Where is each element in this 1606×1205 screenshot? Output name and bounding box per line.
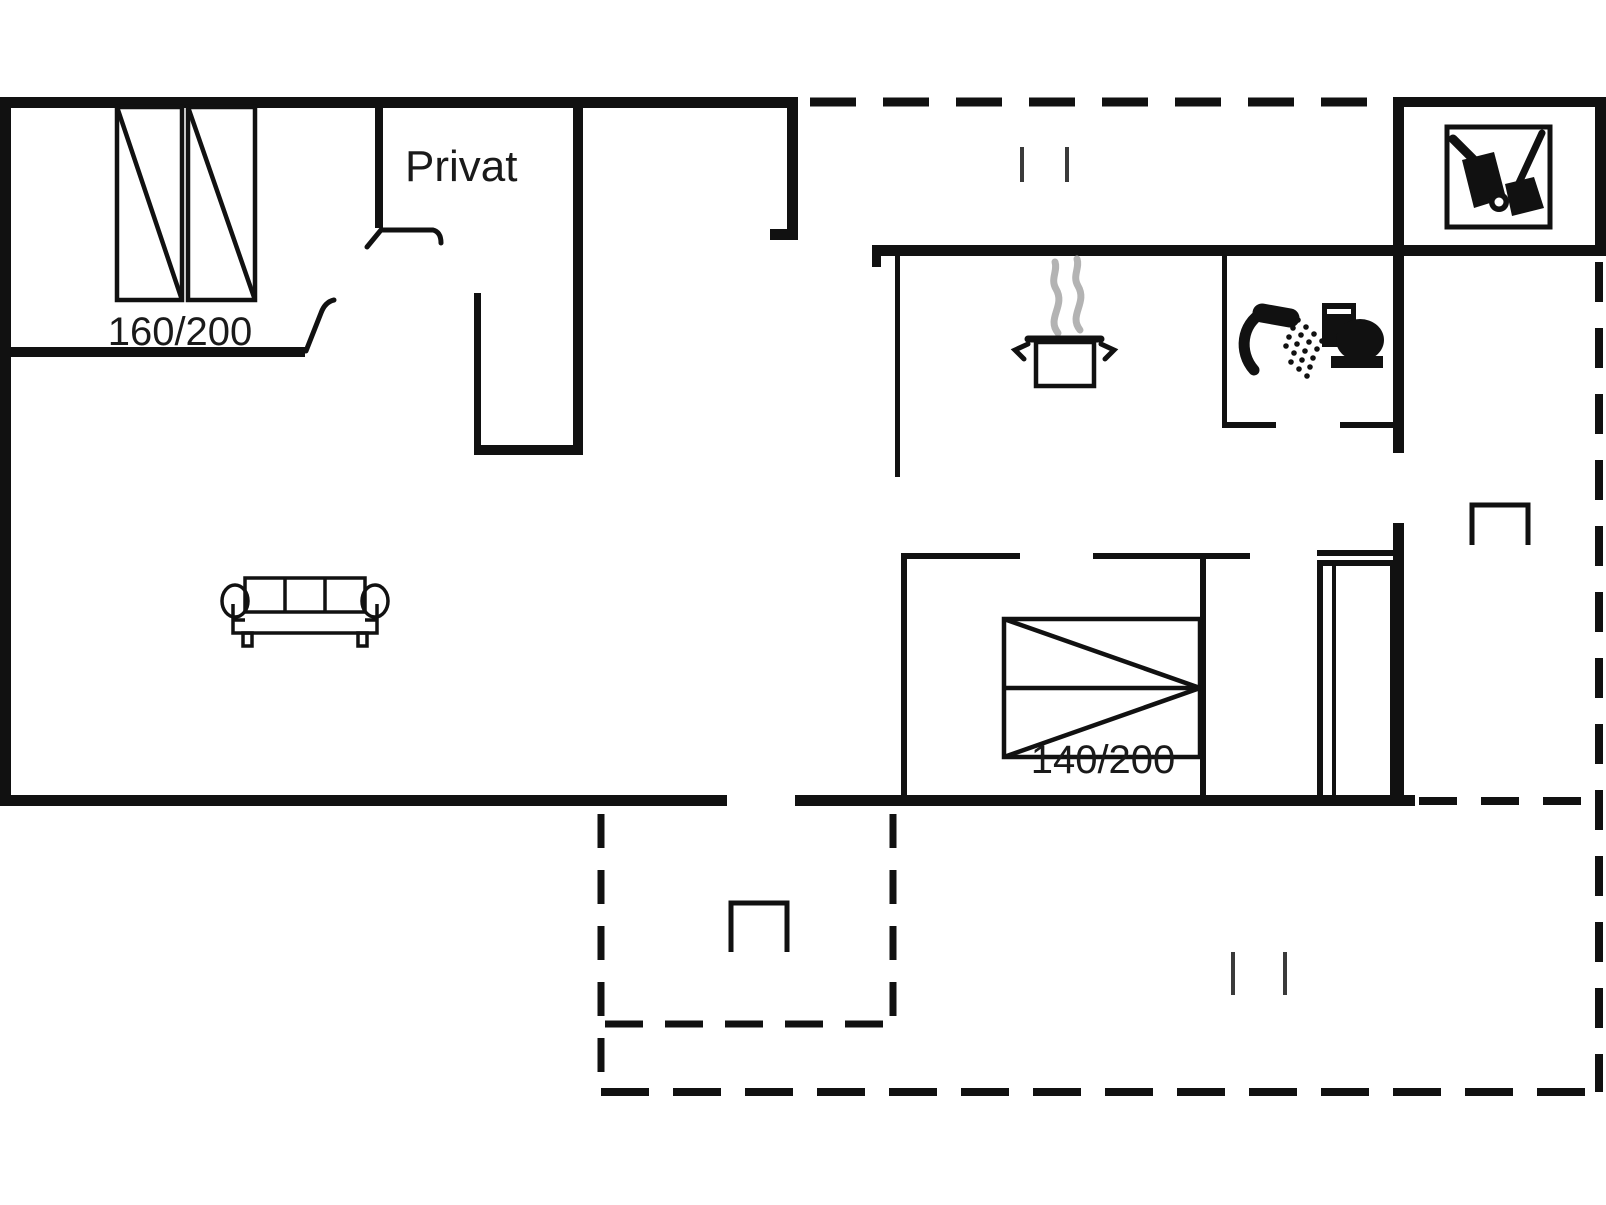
shower-icon [1244, 313, 1325, 379]
bed-size-label-140: 140/200 [1022, 738, 1184, 783]
floor-plan-drawing [0, 0, 1606, 1205]
sofa-icon [222, 578, 388, 646]
bed-size-label-160: 160/200 [100, 310, 260, 355]
entrance-step-icon [731, 903, 787, 952]
toilet-icon [1322, 303, 1384, 368]
double-bed-160-icon [117, 107, 255, 300]
door-swing-icon [381, 230, 441, 243]
wardrobe-icon [1320, 563, 1393, 800]
door-swing-icons [306, 230, 441, 351]
door-swing-icon [306, 300, 334, 351]
cooking-pot-icon [1015, 339, 1114, 386]
outer-walls [0, 97, 1606, 806]
broom-icon [1505, 133, 1544, 216]
double-bed-140-icon [1004, 619, 1200, 757]
steam-icon [1054, 259, 1081, 333]
private-room-label: Privat [405, 142, 517, 192]
floor-plan: Privat 160/200 140/200 [0, 0, 1606, 1205]
sliding-door-marks [1022, 147, 1285, 995]
entrance-step-icon [1472, 505, 1528, 545]
vacuum-cleaner-icon [1453, 139, 1509, 212]
cleaning-equipment-icon [1447, 127, 1550, 227]
entrance-steps [731, 505, 1528, 952]
